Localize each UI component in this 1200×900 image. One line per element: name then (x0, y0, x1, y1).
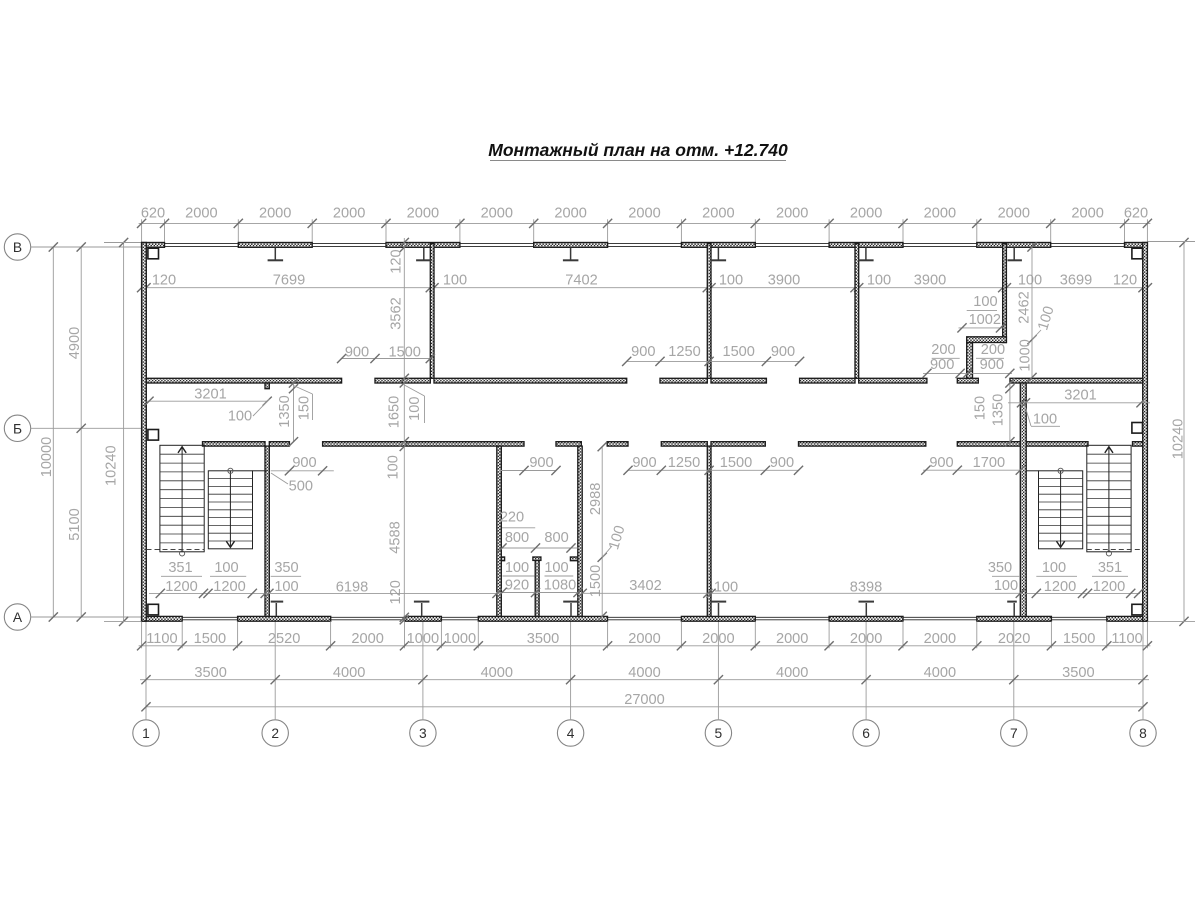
svg-text:900: 900 (929, 455, 953, 471)
svg-text:1500: 1500 (720, 455, 752, 471)
svg-text:5100: 5100 (67, 508, 83, 540)
svg-text:351: 351 (168, 560, 192, 576)
svg-text:1000: 1000 (444, 631, 476, 647)
svg-text:1: 1 (142, 726, 150, 741)
svg-text:Б: Б (13, 421, 22, 436)
svg-text:120: 120 (388, 580, 404, 604)
svg-text:900: 900 (980, 357, 1004, 373)
svg-text:10000: 10000 (39, 437, 55, 478)
svg-text:120: 120 (152, 273, 176, 289)
svg-text:100: 100 (385, 455, 401, 479)
svg-text:2020: 2020 (998, 631, 1030, 647)
svg-text:1000: 1000 (1017, 339, 1033, 371)
svg-text:2000: 2000 (628, 206, 660, 222)
svg-text:2000: 2000 (481, 206, 513, 222)
svg-text:Монтажный план на отм. +12.740: Монтажный план на отм. +12.740 (488, 140, 788, 160)
svg-text:1100: 1100 (146, 631, 177, 647)
svg-text:900: 900 (632, 455, 656, 471)
svg-text:4: 4 (567, 726, 575, 741)
svg-text:120: 120 (389, 249, 405, 273)
svg-text:2: 2 (271, 726, 279, 741)
svg-text:2000: 2000 (998, 206, 1030, 222)
svg-text:2000: 2000 (185, 206, 217, 222)
svg-text:3402: 3402 (629, 578, 661, 594)
svg-text:100: 100 (544, 560, 568, 576)
svg-text:В: В (13, 240, 22, 255)
svg-text:2000: 2000 (351, 631, 383, 647)
svg-text:1500: 1500 (388, 345, 420, 361)
svg-text:7699: 7699 (273, 273, 305, 289)
svg-text:2000: 2000 (924, 206, 956, 222)
svg-text:3900: 3900 (914, 273, 946, 289)
svg-text:6: 6 (862, 726, 870, 741)
svg-text:2988: 2988 (588, 483, 604, 515)
svg-text:4000: 4000 (924, 665, 956, 681)
svg-text:3500: 3500 (1062, 665, 1094, 681)
svg-text:620: 620 (1124, 206, 1148, 222)
svg-text:2000: 2000 (333, 206, 365, 222)
svg-text:2000: 2000 (702, 631, 734, 647)
svg-text:2000: 2000 (850, 206, 882, 222)
svg-text:900: 900 (292, 455, 316, 471)
svg-text:4000: 4000 (333, 665, 365, 681)
svg-text:3562: 3562 (388, 297, 404, 329)
svg-text:4000: 4000 (628, 665, 660, 681)
svg-text:А: А (13, 610, 23, 625)
svg-text:100: 100 (274, 579, 298, 595)
svg-text:500: 500 (289, 479, 313, 495)
svg-text:1350: 1350 (990, 394, 1006, 426)
svg-text:350: 350 (274, 560, 298, 576)
svg-text:900: 900 (770, 455, 794, 471)
svg-text:220: 220 (500, 510, 524, 526)
svg-text:1200: 1200 (213, 579, 245, 595)
svg-text:10240: 10240 (104, 445, 120, 486)
svg-text:1650: 1650 (386, 396, 402, 428)
svg-text:100: 100 (214, 560, 238, 576)
svg-text:8: 8 (1139, 726, 1147, 741)
svg-text:620: 620 (141, 206, 165, 222)
svg-text:100: 100 (994, 578, 1018, 594)
svg-text:100: 100 (714, 579, 738, 595)
svg-text:1002: 1002 (969, 312, 1001, 328)
svg-text:100: 100 (228, 409, 252, 425)
svg-text:920: 920 (505, 578, 529, 594)
svg-text:1080: 1080 (544, 578, 576, 594)
svg-text:900: 900 (345, 345, 369, 361)
svg-text:2000: 2000 (776, 631, 808, 647)
svg-text:4000: 4000 (776, 665, 808, 681)
svg-text:3201: 3201 (194, 387, 226, 403)
svg-text:900: 900 (771, 344, 795, 360)
svg-text:800: 800 (544, 530, 568, 546)
svg-text:100: 100 (867, 273, 891, 289)
svg-text:3699: 3699 (1060, 273, 1092, 289)
svg-text:200: 200 (981, 342, 1005, 358)
svg-text:6198: 6198 (336, 579, 368, 595)
svg-text:1500: 1500 (722, 344, 754, 360)
svg-text:100: 100 (973, 294, 997, 310)
svg-text:1250: 1250 (668, 344, 700, 360)
svg-text:3900: 3900 (768, 273, 800, 289)
svg-text:100: 100 (1042, 560, 1066, 576)
svg-text:1100: 1100 (1111, 631, 1142, 647)
svg-text:2000: 2000 (702, 206, 734, 222)
svg-text:900: 900 (529, 455, 553, 471)
svg-text:350: 350 (988, 560, 1012, 576)
svg-text:4000: 4000 (481, 665, 513, 681)
svg-text:1200: 1200 (1044, 579, 1076, 595)
svg-text:27000: 27000 (624, 692, 665, 708)
svg-text:1200: 1200 (165, 579, 197, 595)
svg-text:100: 100 (1033, 412, 1057, 428)
svg-text:2520: 2520 (268, 631, 300, 647)
svg-text:2462: 2462 (1016, 291, 1032, 323)
svg-text:100: 100 (505, 560, 529, 576)
svg-text:900: 900 (930, 357, 954, 373)
svg-text:1500: 1500 (588, 565, 604, 597)
svg-text:3: 3 (419, 726, 427, 741)
svg-text:10240: 10240 (1170, 419, 1186, 460)
svg-text:120: 120 (1113, 273, 1137, 289)
svg-text:1500: 1500 (194, 631, 226, 647)
svg-text:2000: 2000 (259, 206, 291, 222)
svg-text:351: 351 (1098, 560, 1122, 576)
svg-text:3500: 3500 (194, 665, 226, 681)
svg-text:1500: 1500 (1063, 631, 1095, 647)
svg-text:900: 900 (631, 344, 655, 360)
svg-text:1250: 1250 (668, 455, 700, 471)
svg-text:1350: 1350 (277, 395, 293, 427)
svg-text:2000: 2000 (554, 206, 586, 222)
svg-text:3500: 3500 (527, 631, 559, 647)
svg-text:150: 150 (296, 396, 312, 420)
svg-text:7: 7 (1010, 726, 1018, 741)
svg-text:7402: 7402 (565, 273, 597, 289)
svg-text:2000: 2000 (628, 631, 660, 647)
svg-text:150: 150 (972, 396, 988, 420)
svg-text:1200: 1200 (1093, 579, 1125, 595)
svg-text:200: 200 (931, 342, 955, 358)
svg-text:2000: 2000 (407, 206, 439, 222)
svg-text:100: 100 (1018, 273, 1042, 289)
svg-text:100: 100 (443, 273, 467, 289)
svg-text:3201: 3201 (1064, 388, 1096, 404)
svg-text:100: 100 (407, 397, 423, 421)
svg-text:100: 100 (719, 273, 743, 289)
svg-text:800: 800 (505, 530, 529, 546)
svg-text:4588: 4588 (388, 521, 404, 553)
svg-text:2000: 2000 (924, 631, 956, 647)
svg-text:1700: 1700 (973, 455, 1005, 471)
svg-text:4900: 4900 (67, 327, 83, 359)
svg-text:2000: 2000 (1071, 206, 1103, 222)
svg-text:1000: 1000 (407, 631, 439, 647)
svg-text:5: 5 (715, 726, 723, 741)
svg-text:2000: 2000 (776, 206, 808, 222)
svg-text:2000: 2000 (850, 631, 882, 647)
